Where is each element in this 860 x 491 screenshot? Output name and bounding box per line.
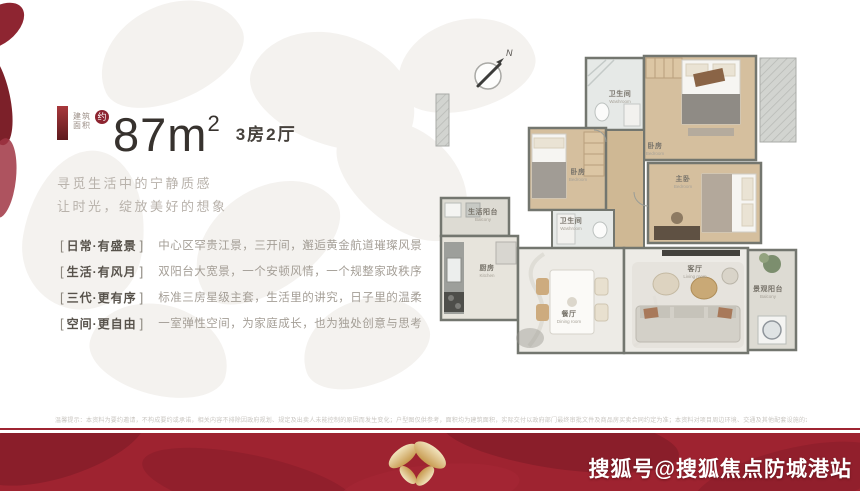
area-label-line2: 面积 — [73, 121, 91, 130]
bracket-open: [ — [60, 264, 64, 279]
area-label-line1: 建筑 — [73, 112, 91, 121]
disclaimer-text: 温馨提示：本资料为要约邀请，不构成要约或承诺，相关内容不排除因政府规划、规定及出… — [55, 415, 807, 424]
feature-desc: 标准三房星级主套，生活里的讲究，日子里的温柔 — [158, 289, 422, 305]
compass-north-label: N — [506, 48, 513, 58]
butterfly-logo-icon — [378, 436, 454, 488]
feature-tag: 三代·更有序 — [67, 289, 137, 306]
feature-row: [ 空间·更自由 ] 一室弹性空间，为家庭成长，也为独处创意与思考 — [57, 310, 422, 336]
corner-ornament — [0, 0, 54, 240]
bracket-close: ] — [140, 290, 144, 305]
feature-row: [ 三代·更有序 ] 标准三房星级主套，生活里的讲究，日子里的温柔 — [57, 284, 422, 310]
watermark-text: 搜狐号@搜狐焦点防城港站 — [589, 453, 852, 483]
divider-rule — [0, 428, 860, 430]
area-value: 87m2 — [113, 100, 221, 158]
feature-list: [ 日常·有盛景 ] 中心区罕贵江景，三开间，邂逅黄金航道璀璨风景 [ 生活·有… — [57, 232, 422, 336]
area-exponent: 2 — [207, 111, 220, 136]
bracket-close: ] — [140, 316, 144, 331]
tagline-2: 让时光，绽放美好的想象 — [57, 195, 297, 218]
bracket-open: [ — [60, 316, 64, 331]
feature-desc: 一室弹性空间，为家庭成长，也为独处创意与思考 — [158, 315, 422, 331]
feature-desc: 双阳台大宽景，一个安顿风情，一个规整家政秩序 — [158, 263, 422, 279]
feature-tag: 空间·更自由 — [67, 315, 137, 332]
area-label: 建筑 面积 — [73, 112, 91, 130]
feature-desc: 中心区罕贵江景，三开间，邂逅黄金航道璀璨风景 — [158, 237, 422, 253]
bracket-open: [ — [60, 238, 64, 253]
feature-tag: 生活·有风月 — [67, 263, 137, 280]
footer-banner: 搜狐号@搜狐焦点防城港站 — [0, 433, 860, 491]
approx-badge: 约 — [95, 110, 109, 124]
accent-bar — [57, 106, 68, 140]
bracket-close: ] — [140, 238, 144, 253]
header: 建筑 面积 约 87m2 3房2厅 寻觅生活中的宁静质感 让时光，绽放美好的想象 — [57, 100, 297, 218]
taglines: 寻觅生活中的宁静质感 让时光，绽放美好的想象 — [57, 172, 297, 218]
floor-plan: N 卫生间 Washroom 卧房 Bedroom 卧房 Bedroom 主卧 … — [434, 46, 806, 366]
tagline-1: 寻觅生活中的宁静质感 — [57, 172, 297, 195]
compass: N — [464, 48, 520, 100]
feature-row: [ 生活·有风月 ] 双阳台大宽景，一个安顿风情，一个规整家政秩序 — [57, 258, 422, 284]
bracket-open: [ — [60, 290, 64, 305]
bracket-close: ] — [140, 264, 144, 279]
feature-tag: 日常·有盛景 — [67, 237, 137, 254]
area-number: 87m — [113, 108, 207, 161]
feature-row: [ 日常·有盛景 ] 中心区罕贵江景，三开间，邂逅黄金航道璀璨风景 — [57, 232, 422, 258]
layout-type: 3房2厅 — [236, 120, 297, 145]
